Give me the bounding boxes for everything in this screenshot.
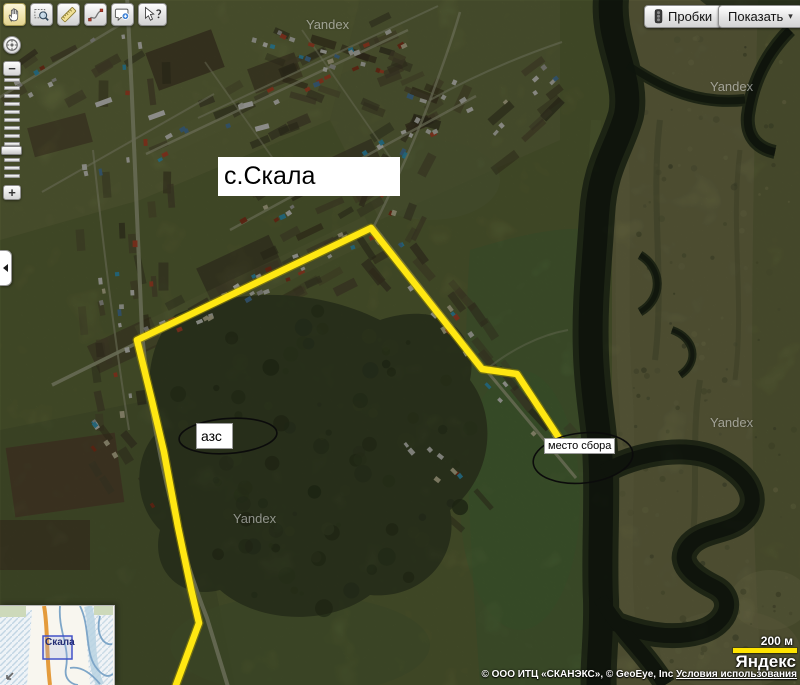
zoom-slider-handle[interactable] [1, 146, 22, 155]
zoom-tick[interactable] [4, 134, 20, 138]
add-balloon-icon [113, 5, 132, 24]
satellite-map-canvas[interactable] [0, 0, 800, 685]
chevron-left-icon [3, 264, 8, 272]
hand-icon [5, 5, 24, 24]
zoom-tick[interactable] [4, 158, 20, 162]
yandex-maps-window: Yandex Yandex Yandex Yandex с.Скала азс … [0, 0, 800, 685]
zoom-tick[interactable] [4, 78, 20, 82]
gas-station-label: азс [196, 423, 233, 449]
route-tool-button[interactable] [84, 3, 107, 26]
panel-collapse-button[interactable] [0, 250, 12, 286]
minimap-collapse-button[interactable] [3, 670, 16, 683]
zoom-tick[interactable] [4, 94, 20, 98]
zoom-tick[interactable] [4, 166, 20, 170]
locate-button[interactable] [3, 36, 21, 54]
ruler-icon [59, 5, 78, 24]
zoom-tick[interactable] [4, 102, 20, 106]
zoom-tick[interactable] [4, 126, 20, 130]
place-label-skala: с.Скала [218, 157, 400, 196]
chevron-down-icon: ▾ [788, 11, 793, 22]
zoom-tick[interactable] [4, 118, 20, 122]
ruler-tool-button[interactable] [57, 3, 80, 26]
traffic-button[interactable]: Пробки [644, 5, 722, 28]
minimap-viewport-label: Скала [45, 637, 75, 648]
meeting-place-label: место сбора [544, 438, 615, 454]
zoom-tick[interactable] [4, 86, 20, 90]
scale-label: 200 м [761, 634, 793, 648]
traffic-light-icon [654, 9, 663, 24]
zoom-in-button[interactable]: + [3, 185, 21, 200]
zoom-area-tool-button[interactable] [30, 3, 53, 26]
copyright-line: © ООО ИТЦ «СКАНЭКС», © GeoEye, Inc Услов… [481, 669, 797, 680]
zoom-slider[interactable] [3, 78, 21, 182]
zoom-area-icon [32, 5, 51, 24]
overview-minimap[interactable]: Скала [0, 605, 115, 685]
zoom-tick[interactable] [4, 110, 20, 114]
help-cursor-icon [140, 5, 165, 24]
add-placemark-tool-button[interactable] [111, 3, 134, 26]
terms-of-use-link[interactable]: Условия использования [676, 669, 797, 680]
traffic-button-label: Пробки [668, 9, 712, 24]
zoom-out-button[interactable]: − [3, 61, 21, 76]
show-button-label: Показать [728, 9, 783, 24]
collapse-arrow-icon [3, 671, 16, 683]
copyright-text: © ООО ИТЦ «СКАНЭКС», © GeoEye, Inc [481, 669, 673, 680]
show-menu-button[interactable]: Показать ▾ [718, 5, 800, 28]
route-icon [86, 5, 105, 24]
compass-icon [5, 38, 19, 52]
pan-tool-button[interactable] [3, 3, 26, 26]
zoom-tick[interactable] [4, 174, 20, 178]
help-tool-button[interactable] [138, 3, 167, 26]
